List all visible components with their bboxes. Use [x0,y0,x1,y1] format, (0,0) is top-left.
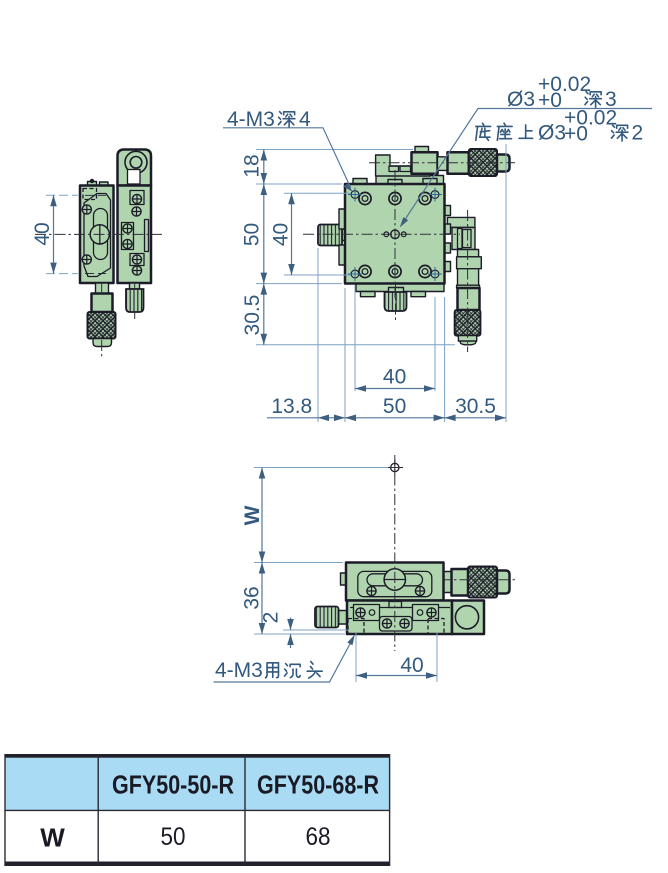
svg-text:40: 40 [31,222,54,245]
svg-text:36: 36 [241,586,264,609]
svg-text:30.5: 30.5 [455,395,496,418]
svg-text:30.5: 30.5 [241,295,264,336]
svg-text:50: 50 [161,823,186,851]
svg-text:W: W [241,505,264,525]
svg-text:50: 50 [241,223,264,246]
svg-text:18: 18 [241,154,264,177]
svg-text:40: 40 [383,366,406,389]
svg-text:4-M3: 4-M3 [215,659,263,682]
svg-text:2: 2 [632,122,644,145]
svg-text:+0: +0 [564,123,588,146]
svg-text:GFY50-50-R: GFY50-50-R [112,770,234,800]
svg-text:Ø3: Ø3 [538,122,566,145]
svg-text:68: 68 [306,823,331,851]
svg-text:40: 40 [400,654,423,677]
svg-text:13.8: 13.8 [271,395,312,418]
svg-text:Ø3: Ø3 [507,88,535,111]
svg-text:GFY50-68-R: GFY50-68-R [257,770,379,800]
svg-text:50: 50 [383,395,406,418]
svg-text:40: 40 [270,223,293,246]
svg-text:W: W [40,823,65,853]
svg-text:2: 2 [260,612,283,624]
